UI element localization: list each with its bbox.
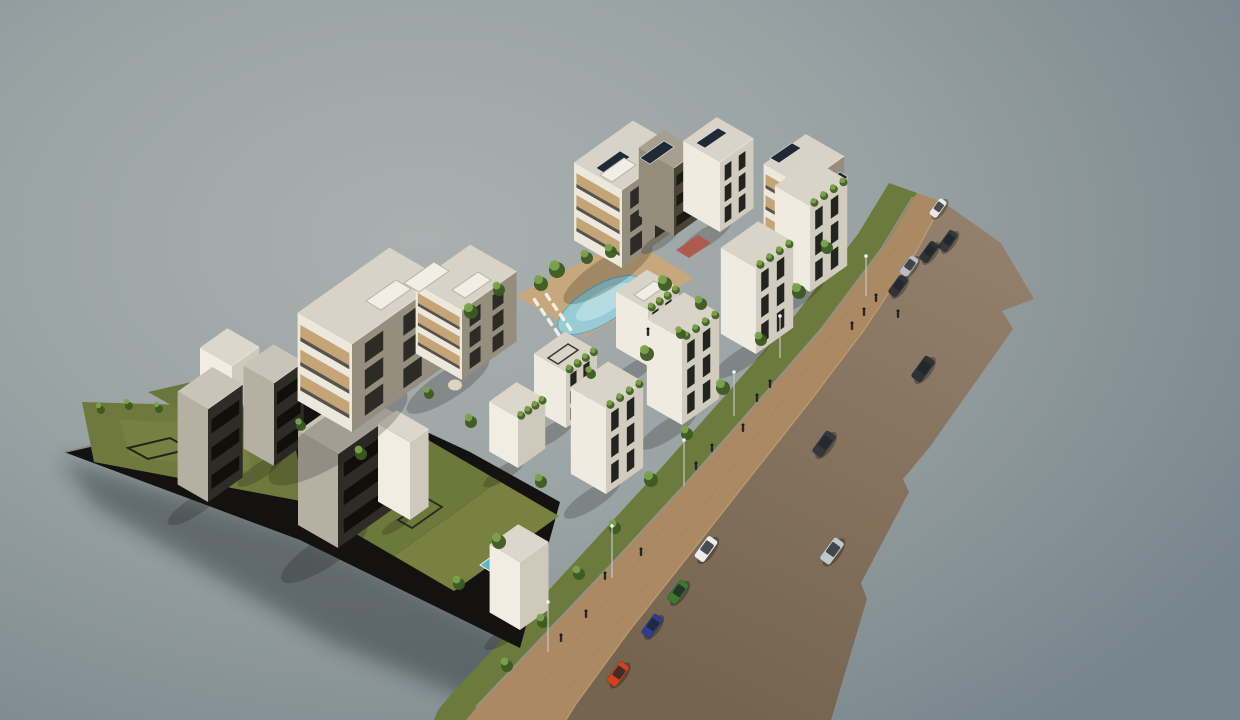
palm-tree (534, 275, 543, 284)
palm-tree (453, 576, 461, 584)
pedestrian-head (711, 444, 714, 447)
pedestrian-head (769, 380, 772, 383)
facade-shadow-side (410, 429, 429, 520)
facade-sunlit (244, 366, 274, 466)
patio-parasol (448, 380, 462, 391)
palm-tree (423, 386, 430, 393)
pedestrian-head (604, 572, 607, 575)
pedestrian-head (640, 548, 643, 551)
pedestrian (604, 574, 606, 580)
roof-shrub (626, 386, 632, 392)
roof-shrub (786, 239, 792, 245)
palm-tree (581, 250, 589, 258)
facade-sunlit (178, 392, 208, 502)
palm-tree (295, 418, 302, 425)
pedestrian-head (742, 424, 745, 427)
pedestrian-head (851, 322, 854, 325)
pedestrian (897, 312, 899, 318)
palm-tree (154, 402, 159, 407)
roof-shrub (766, 253, 772, 259)
palm-tree (585, 366, 592, 373)
palm-tree (535, 474, 543, 482)
palm-tree (501, 658, 509, 666)
palm-tree (695, 296, 703, 304)
roof-shrub (566, 365, 572, 371)
pedestrian (585, 612, 587, 618)
roof-shrub (574, 359, 580, 365)
roof-shrub (525, 406, 531, 412)
pedestrian (756, 396, 758, 402)
pedestrian (875, 296, 877, 302)
pedestrian-head (695, 462, 698, 465)
pedestrian-head (560, 634, 563, 637)
palm-tree (675, 326, 682, 333)
architectural-render-stage (0, 0, 1240, 720)
pedestrian (851, 324, 853, 330)
pedestrian (742, 426, 744, 432)
palm-tree (465, 414, 473, 422)
roof-shrub (664, 291, 670, 297)
palm-tree (549, 260, 559, 270)
palm-tree (492, 533, 501, 542)
roof-shrub (517, 411, 523, 417)
roof-shrub (702, 317, 708, 323)
roof-shrub (692, 324, 698, 330)
street-lamp-head (610, 524, 614, 528)
pedestrian (711, 446, 713, 452)
roof-shrub (830, 184, 836, 190)
street-lamp-head (546, 600, 550, 604)
roof-shrub (656, 297, 662, 303)
pedestrian-head (863, 308, 866, 311)
palm-tree (464, 303, 473, 312)
palm-tree (96, 403, 101, 408)
roof-shrub (616, 393, 622, 399)
palm-tree (640, 345, 649, 354)
street-lamp-head (778, 314, 782, 318)
palm-tree (821, 240, 829, 248)
palm-tree (573, 566, 581, 574)
render-canvas (0, 0, 1240, 720)
roof-shrub (636, 379, 642, 385)
pedestrian-head (647, 328, 650, 331)
roof-shrub (590, 347, 596, 353)
street-lamp-head (682, 438, 686, 442)
roof-shrub (840, 177, 846, 183)
palm-tree (681, 426, 689, 434)
roof-shrub (582, 353, 588, 359)
palm-tree (644, 471, 653, 480)
roof-shrub (712, 310, 718, 316)
sun-lounger (546, 317, 554, 326)
palm-tree (792, 283, 801, 292)
roof-shrub (757, 260, 763, 266)
pedestrian (769, 382, 771, 388)
palm-tree (355, 446, 363, 454)
roof-shrub (776, 246, 782, 252)
palm-tree (537, 614, 545, 622)
pedestrian (560, 636, 562, 642)
roof-shrub (672, 285, 678, 291)
pedestrian (695, 464, 697, 470)
roof-shrub (648, 303, 654, 309)
pedestrian-head (756, 394, 759, 397)
palm-tree (755, 332, 763, 340)
palm-tree (716, 379, 725, 388)
pedestrian (640, 550, 642, 556)
palm-tree (605, 244, 613, 252)
roof-shrub (532, 401, 538, 407)
pedestrian-head (897, 310, 900, 313)
pedestrian-head (875, 294, 878, 297)
roof-shrub (820, 191, 826, 197)
street-lamp-head (864, 254, 868, 258)
roof-shrub (811, 198, 817, 204)
street-lamp-head (732, 370, 736, 374)
roof-shrub (539, 396, 545, 402)
pedestrian (647, 330, 649, 336)
palm-tree (493, 282, 501, 290)
palm-tree (658, 275, 667, 284)
pedestrian (863, 310, 865, 316)
palm-tree (124, 399, 129, 404)
roof-shrub (607, 400, 613, 406)
scene-layers (60, 117, 1034, 720)
pedestrian-head (585, 610, 588, 613)
